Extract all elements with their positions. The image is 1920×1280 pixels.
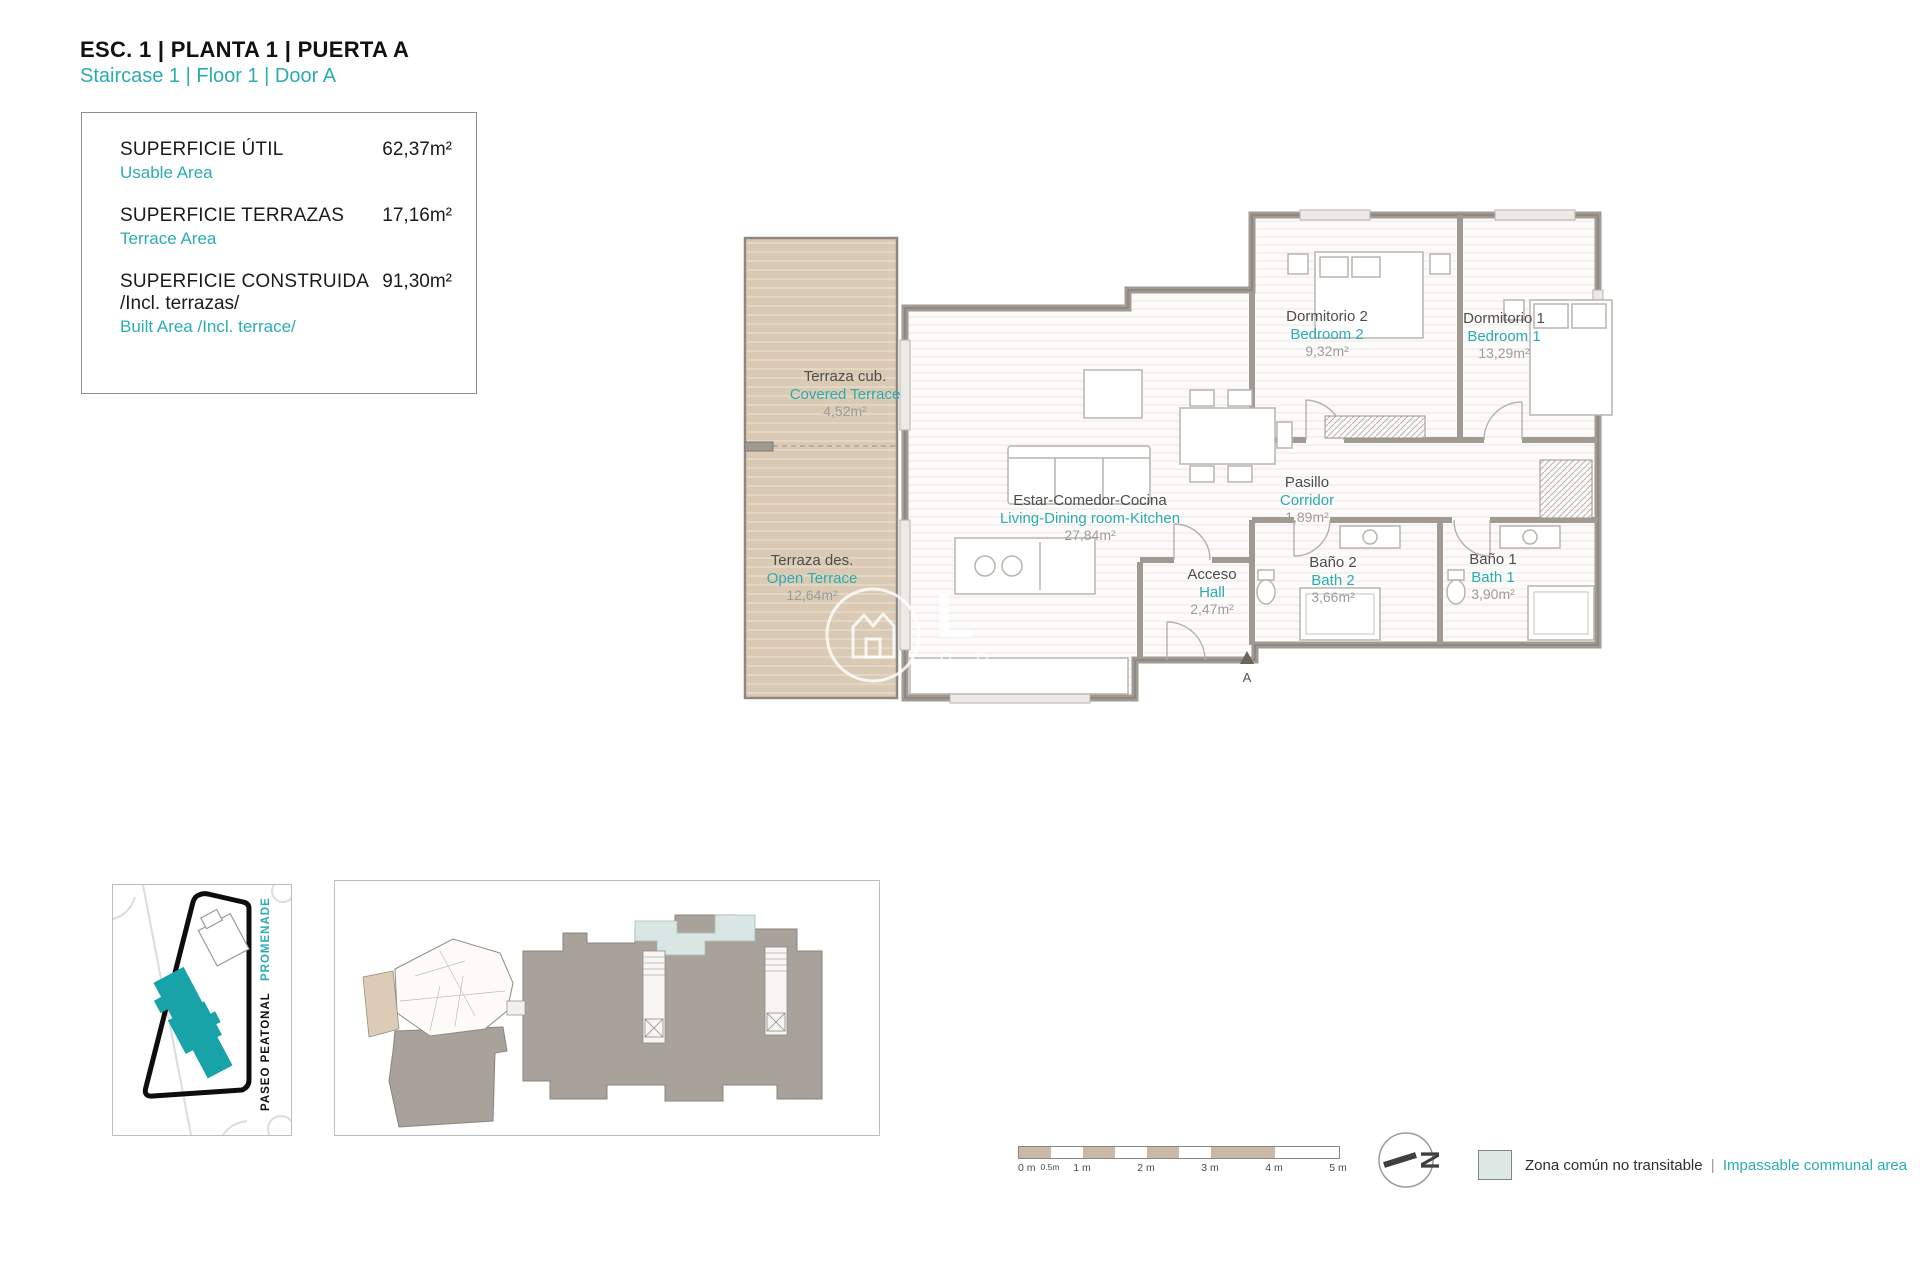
area-row-built: SUPERFICIE CONSTRUIDA 91,30m² /Incl. ter… [120,271,452,337]
area-label-es: SUPERFICIE TERRAZAS [120,205,344,227]
room-name-es: Dormitorio 1 [1463,310,1545,328]
area-label-en: Built Area /Incl. terrace/ [120,317,452,337]
scale-bar-segments [1018,1146,1340,1159]
coffee-table [1084,370,1142,418]
room-name-en: Bedroom 1 [1463,328,1545,346]
room-label-open-terrace: Terraza des. Open Terrace 12,64m² [767,552,858,604]
key-connector [507,1001,525,1015]
room-name-es: Pasillo [1280,474,1334,492]
street-label-promenade: PROMENADE [260,895,272,981]
room-area: 27,84m² [1000,527,1180,544]
room-name-en: Bedroom 2 [1286,326,1368,344]
area-label-es: SUPERFICIE CONSTRUIDA [120,271,369,293]
apartment-floor-plan: A [740,190,1630,730]
building-key-plan [334,880,880,1136]
legend-swatch-communal-area [1478,1150,1512,1180]
legend-label-en: Impassable communal area [1723,1157,1907,1174]
scale-tick: 3 m [1201,1162,1219,1174]
area-row-terrace: SUPERFICIE TERRAZAS 17,16m² Terrace Area [120,205,452,249]
scale-bar-labels: 0 m 0.5m 1 m 2 m 3 m 4 m 5 m [1018,1159,1358,1175]
room-label-living: Estar-Comedor-Cocina Living-Dining room-… [1000,492,1180,544]
kitchen-island [955,538,1095,594]
compass-north-letter: N [1415,1151,1445,1170]
terrace-block [745,238,897,698]
room-area: 3,90m² [1469,586,1517,603]
room-name-en: Open Terrace [767,570,858,588]
scale-bar: 0 m 0.5m 1 m 2 m 3 m 4 m 5 m [1018,1146,1358,1180]
room-label-hall: Acceso Hall 2,47m² [1187,566,1236,618]
room-area: 9,32m² [1286,343,1368,360]
scale-tick: 5 m [1329,1162,1347,1174]
key-neighbor-unit-left [389,1027,507,1127]
room-label-bedroom1: Dormitorio 1 Bedroom 1 13,29m² [1463,310,1545,362]
room-label-bedroom2: Dormitorio 2 Bedroom 2 9,32m² [1286,308,1368,360]
room-label-bath2: Baño 2 Bath 2 3,66m² [1309,554,1357,606]
key-plan-drawing [335,881,879,1135]
north-compass: N [1372,1122,1454,1204]
room-label-bath1: Baño 1 Bath 1 3,90m² [1469,551,1517,603]
street-label-paseo-peatonal: PASEO PEATONAL [260,989,272,1111]
scale-tick: 0 m [1018,1162,1036,1174]
area-label-en: Usable Area [120,163,452,183]
room-area: 1,89m² [1280,509,1334,526]
room-name-es: Terraza cub. [790,368,901,386]
key-subject-apartment [395,939,513,1036]
area-label-es2: /Incl. terrazas/ [120,293,452,315]
page-subtitle: Staircase 1 | Floor 1 | Door A [80,64,409,89]
room-name-en: Bath 2 [1309,572,1357,590]
room-area: 12,64m² [767,587,858,604]
scale-tick: 0.5m [1041,1162,1060,1172]
room-name-en: Corridor [1280,492,1334,510]
room-area: 2,47m² [1187,601,1236,618]
room-label-covered-terrace: Terraza cub. Covered Terrace 4,52m² [790,368,901,420]
area-value: 91,30m² [382,271,452,293]
dining-table [1180,408,1275,464]
compass-icon: N [1372,1122,1454,1204]
site-location-plan: PROMENADE PASEO PEATONAL [112,884,292,1136]
legend-label-es: Zona común no transitable [1525,1157,1703,1174]
area-row-usable: SUPERFICIE ÚTIL 62,37m² Usable Area [120,139,452,183]
room-name-es: Acceso [1187,566,1236,584]
scale-tick: 2 m [1137,1162,1155,1174]
room-name-es: Terraza des. [767,552,858,570]
room-name-es: Estar-Comedor-Cocina [1000,492,1180,510]
page-title: ESC. 1 | PLANTA 1 | PUERTA A [80,36,409,64]
sheet-header: ESC. 1 | PLANTA 1 | PUERTA A Staircase 1… [80,36,409,89]
room-name-es: Dormitorio 2 [1286,308,1368,326]
area-value: 17,16m² [382,205,452,227]
room-area: 3,66m² [1309,589,1357,606]
scale-tick: 1 m [1073,1162,1091,1174]
room-name-en: Covered Terrace [790,386,901,404]
area-label-en: Terrace Area [120,229,452,249]
key-subject-terrace [363,971,399,1037]
room-name-es: Baño 1 [1469,551,1517,569]
room-name-en: Living-Dining room-Kitchen [1000,510,1180,528]
kitchen-counter [910,658,1128,694]
room-name-en: Bath 1 [1469,569,1517,587]
legend: Zona común no transitable | Impassable c… [1478,1150,1907,1180]
area-summary-box: SUPERFICIE ÚTIL 62,37m² Usable Area SUPE… [81,112,477,394]
shower-1 [1528,586,1594,640]
legend-separator: | [1707,1157,1719,1174]
room-area: 13,29m² [1463,345,1545,362]
area-value: 62,37m² [382,139,452,161]
site-neighbor-building [194,905,249,966]
floor-plan-drawing: A [740,190,1630,730]
room-name-es: Baño 2 [1309,554,1357,572]
room-area: 4,52m² [790,403,901,420]
scale-tick: 4 m [1265,1162,1283,1174]
room-label-corridor: Pasillo Corridor 1,89m² [1280,474,1334,526]
room-name-en: Hall [1187,584,1236,602]
area-label-es: SUPERFICIE ÚTIL [120,139,283,161]
section-marker-letter: A [1243,670,1252,685]
